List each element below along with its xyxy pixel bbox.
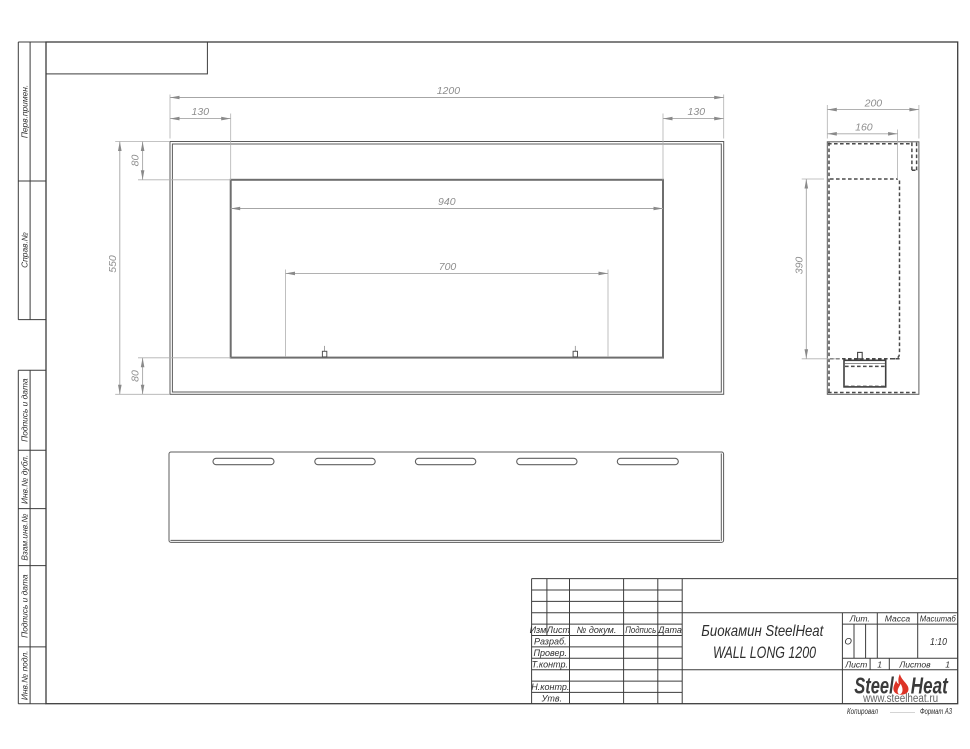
svg-text:550: 550 — [107, 255, 119, 273]
svg-text:Листов: Листов — [898, 659, 931, 669]
svg-text:130: 130 — [192, 106, 210, 118]
svg-text:Дата: Дата — [657, 625, 682, 635]
svg-text:Масштаб: Масштаб — [920, 614, 957, 624]
svg-text:Лит.: Лит. — [849, 614, 870, 624]
svg-text:Разраб.: Разраб. — [534, 637, 567, 647]
svg-text:О: О — [845, 637, 853, 648]
svg-text:Н.контр.: Н.контр. — [531, 682, 569, 692]
svg-text:Подпись и дата: Подпись и дата — [19, 378, 29, 442]
svg-text:WALL LONG 1200: WALL LONG 1200 — [713, 644, 817, 662]
svg-text:Биокамин SteelHeat: Биокамин SteelHeat — [701, 623, 823, 640]
svg-text:Утв.: Утв. — [541, 694, 562, 704]
svg-text:Подпись: Подпись — [625, 625, 656, 635]
svg-text:390: 390 — [793, 257, 805, 275]
svg-text:Масса: Масса — [885, 614, 911, 624]
svg-text:Перв.примен.: Перв.примен. — [19, 85, 29, 138]
svg-text:www.steelheat.ru: www.steelheat.ru — [862, 693, 938, 705]
svg-text:1:10: 1:10 — [930, 637, 947, 648]
svg-text:Инв.№ дубл.: Инв.№ дубл. — [19, 455, 29, 504]
svg-text:Взам.инв.№: Взам.инв.№ — [19, 514, 29, 561]
svg-text:1: 1 — [877, 659, 882, 669]
svg-text:Т.контр.: Т.контр. — [532, 659, 568, 669]
svg-text:Копировал: Копировал — [847, 707, 878, 716]
svg-text:Лист: Лист — [546, 625, 571, 635]
svg-text:160: 160 — [855, 122, 873, 134]
svg-text:Лист: Лист — [844, 659, 867, 669]
svg-text:1200: 1200 — [437, 85, 461, 97]
svg-text:Инв.№ подл.: Инв.№ подл. — [19, 650, 29, 700]
svg-text:130: 130 — [688, 106, 706, 118]
svg-text:Подпись и дата: Подпись и дата — [19, 574, 29, 638]
svg-text:Справ.№: Справ.№ — [19, 232, 29, 268]
svg-text:80: 80 — [130, 155, 142, 167]
svg-text:Формат А3: Формат А3 — [920, 707, 952, 716]
svg-text:200: 200 — [864, 97, 883, 109]
svg-text:80: 80 — [130, 370, 142, 382]
svg-text:1: 1 — [945, 659, 950, 669]
svg-text:940: 940 — [438, 196, 456, 208]
svg-text:Провер.: Провер. — [534, 648, 568, 658]
svg-text:№ докум.: № докум. — [577, 625, 617, 635]
svg-text:700: 700 — [439, 261, 457, 273]
